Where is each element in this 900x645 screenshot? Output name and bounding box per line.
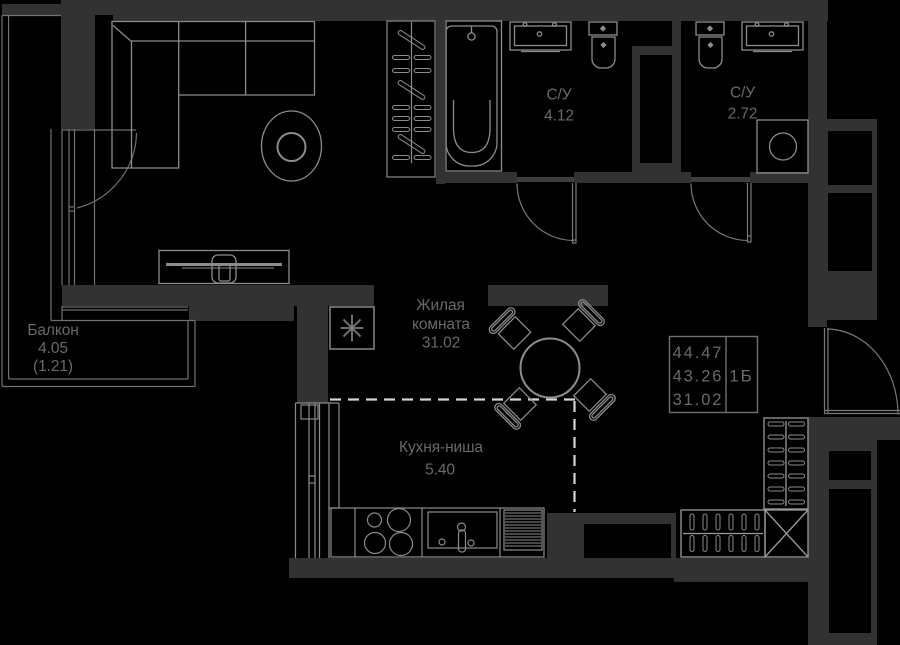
svg-text:43.26: 43.26	[673, 368, 724, 386]
svg-text:(1.21): (1.21)	[33, 358, 73, 375]
svg-text:31.02: 31.02	[673, 391, 724, 409]
svg-text:31.02: 31.02	[422, 335, 460, 352]
svg-text:Балкон: Балкон	[27, 322, 78, 339]
svg-text:5.40: 5.40	[425, 462, 455, 479]
svg-text:С/У: С/У	[730, 85, 755, 102]
svg-text:1Б: 1Б	[729, 367, 753, 386]
svg-text:4.05: 4.05	[38, 340, 68, 357]
svg-text:4.12: 4.12	[544, 108, 574, 125]
svg-text:Кухня-ниша: Кухня-ниша	[399, 439, 483, 456]
svg-text:комната: комната	[412, 316, 470, 333]
svg-text:44.47: 44.47	[673, 344, 724, 362]
svg-text:2.72: 2.72	[728, 106, 758, 123]
svg-text:Жилая: Жилая	[416, 297, 465, 314]
svg-text:С/У: С/У	[546, 87, 571, 104]
